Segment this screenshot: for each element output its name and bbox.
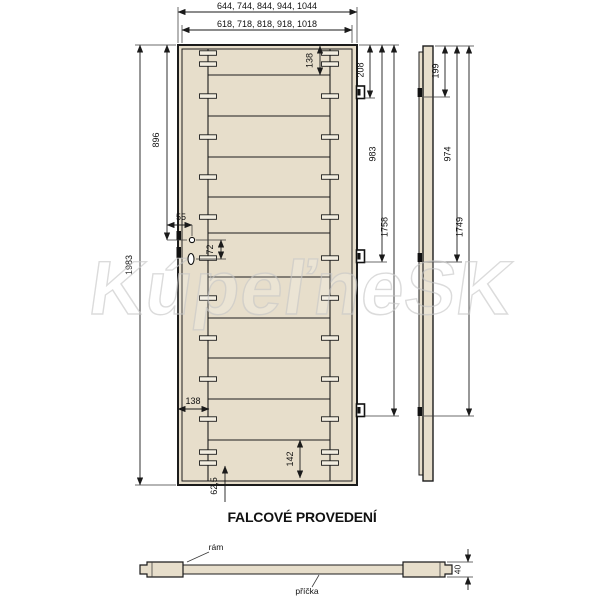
dim-bottom-rail: 142 bbox=[285, 451, 295, 466]
watermark-text: KúpeľneSK bbox=[84, 246, 518, 331]
dim-lock-backset: 55 bbox=[176, 212, 186, 222]
dim-hinge-middle: 983 bbox=[368, 146, 378, 161]
dim-inner-widths: 618, 718, 818, 918, 1018 bbox=[217, 19, 317, 29]
lock-faceplate-upper bbox=[177, 231, 182, 240]
dim-thickness: 40 bbox=[453, 565, 463, 575]
dim-hinge-top: 208 bbox=[356, 62, 366, 77]
dim-stile-width: 138 bbox=[185, 396, 200, 406]
section-crossbar-panel bbox=[183, 565, 403, 574]
frame-label: rám bbox=[209, 542, 224, 552]
dim-bottom-dowel: 62,5 bbox=[209, 477, 219, 495]
technical-drawing-page: 644, 744, 844, 944, 1044 618, 718, 818, … bbox=[0, 0, 600, 600]
drawing-title: FALCOVÉ PROVEDENÍ bbox=[227, 509, 377, 525]
key-hole bbox=[189, 237, 194, 242]
dim-top-rail: 138 bbox=[305, 53, 315, 68]
crossbar-label: příčka bbox=[295, 586, 318, 596]
dim-side-hinge-top: 199 bbox=[431, 63, 441, 78]
dim-hinge-bottom: 1758 bbox=[380, 217, 390, 237]
dim-side-hinge-middle: 974 bbox=[443, 146, 453, 161]
door-technical-drawing: 644, 744, 844, 944, 1044 618, 718, 818, … bbox=[0, 0, 600, 600]
section-frame-right bbox=[403, 562, 452, 577]
section-view: rám příčka 40 bbox=[140, 542, 473, 596]
section-frame-left bbox=[140, 562, 183, 577]
dim-outer-widths: 644, 744, 844, 944, 1044 bbox=[217, 1, 317, 11]
dim-side-hinge-bottom: 1749 bbox=[455, 217, 465, 237]
dim-lock-height: 896 bbox=[151, 132, 161, 147]
